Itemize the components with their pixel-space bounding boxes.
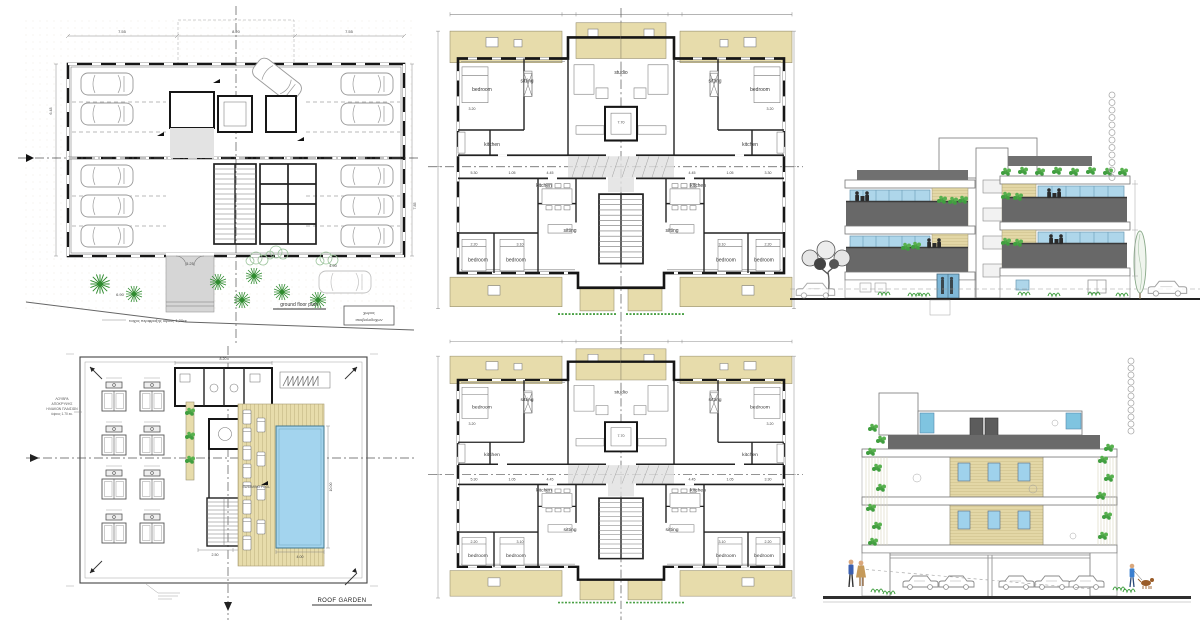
detail-circles-chain (1109, 92, 1115, 181)
svg-text:ΑΠΟΚΡΥΨΗΣ: ΑΠΟΚΡΥΨΗΣ (52, 402, 73, 406)
rear-elevation (823, 358, 1191, 602)
roof-level (879, 393, 1100, 449)
svg-text:ΗΛΙΑΚΩΝ ΠΛΑΙΣΙΩΝ: ΗΛΙΑΚΩΝ ΠΛΑΙΣΙΩΝ (46, 407, 78, 411)
bins-box (344, 306, 394, 325)
left-wing (845, 170, 975, 298)
svg-text:7.55: 7.55 (118, 29, 127, 34)
typical-floor-plan-lower (428, 336, 803, 620)
svg-text:8.20: 8.20 (220, 357, 227, 361)
svg-text:10.00: 10.00 (329, 483, 333, 492)
detail-circles-chain (1128, 358, 1134, 434)
svg-text:σκυβαλοδοχων: σκυβαλοδοχων (356, 317, 383, 322)
right-wing (1000, 156, 1130, 298)
svg-text:6.48: 6.48 (49, 108, 53, 115)
typical-floor-plan-upper (428, 8, 803, 334)
svg-text:7.85: 7.85 (413, 203, 417, 210)
parking-level (860, 553, 1117, 596)
roof-garden-panel: ΛΟΥΒΡΑ ΑΠΟΚΡΥΨΗΣ ΗΛΙΑΚΩΝ ΠΛΑΙΣΙΩΝ ύψους … (18, 346, 423, 620)
ground-floor-plan-panel: 7.55 8.20 7.55 6.48 7.85 (18, 6, 418, 344)
svg-text:4.00: 4.00 (297, 555, 304, 559)
svg-text:6.90: 6.90 (116, 292, 125, 297)
svg-text:5.25: 5.25 (186, 261, 195, 266)
roof-parapet (888, 435, 1100, 449)
front-elevation-panel (790, 88, 1200, 320)
svg-text:2.50: 2.50 (212, 553, 219, 557)
svg-text:4.90: 4.90 (329, 263, 338, 268)
svg-text:ύψους 1.70 εκ.: ύψους 1.70 εκ. (51, 412, 73, 416)
svg-text:ΛΟΥΒΡΑ: ΛΟΥΒΡΑ (55, 397, 69, 401)
front-elevation (790, 92, 1200, 315)
svg-text:8.20: 8.20 (232, 29, 241, 34)
man-figure (849, 560, 854, 587)
roof-garden-title: ROOF GARDEN (317, 598, 366, 604)
pool-label: SWIMMING POOL (242, 485, 270, 489)
fence-note: τοιχος περιφραξης ύψους 1,20εκ. (129, 318, 188, 323)
entrance-door (937, 274, 959, 298)
rear-elevation-panel (815, 356, 1200, 622)
drawing-sheet: studio 7.70 bedroom sitting kitchen bedr… (0, 0, 1200, 622)
ground-floor-title: ground floor plan (280, 302, 318, 308)
dog-figure (1138, 578, 1154, 589)
louver-note: ΛΟΥΒΡΑ ΑΠΟΚΡΥΨΗΣ ΗΛΙΑΚΩΝ ΠΛΑΙΣΙΩΝ ύψους … (46, 397, 82, 416)
street-car (319, 271, 371, 293)
svg-text:7.55: 7.55 (345, 29, 354, 34)
svg-text:χωρος: χωρος (363, 310, 375, 315)
dog-walker-figure (1130, 564, 1142, 587)
planter-strip (185, 402, 195, 480)
bottom-annotation (146, 584, 180, 599)
title-block: ROOF GARDEN (312, 598, 372, 605)
